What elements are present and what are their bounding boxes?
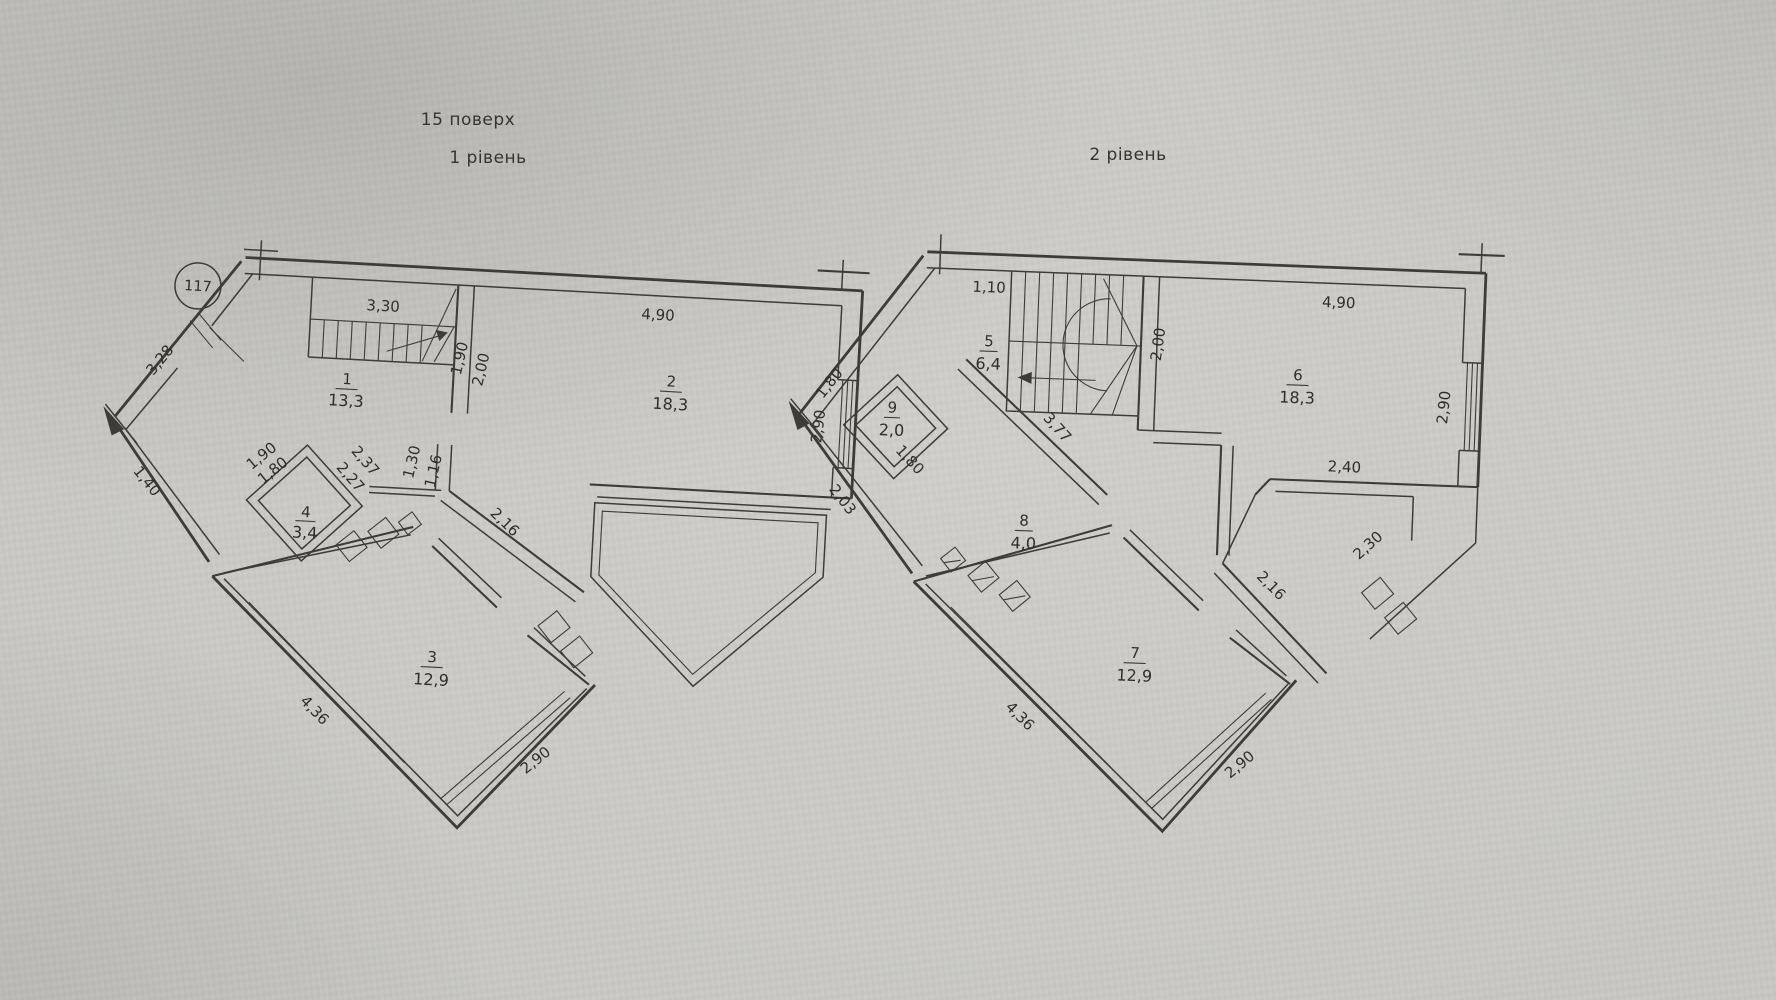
dim-terrace-a: 2,30 (1350, 528, 1387, 564)
level2-title: 2 рівень (1058, 145, 1198, 165)
room4-area: 3,4 (292, 522, 318, 542)
dim-entry: 1,80 (812, 365, 847, 402)
level1-apartment-badge: 117 (174, 262, 222, 310)
room3-number: 3 (427, 648, 438, 666)
level2-floor-plan: 5 6,4 6 18,3 7 12,9 8 4,0 9 2,0 1,10 4,9… (759, 216, 1543, 885)
level1-walls (95, 220, 870, 597)
dim-terrace-b: 2,16 (1253, 567, 1289, 603)
dim-side: 2,03 (825, 481, 860, 518)
dim-hall-b: 2,00 (468, 351, 493, 388)
dim-hall-a: 1,90 (447, 340, 472, 377)
dim-hall: 3,77 (1039, 409, 1075, 446)
room1-number: 1 (342, 370, 353, 388)
level1-stairs (308, 277, 458, 365)
level2-laundry-fixtures (939, 547, 1032, 612)
level1-title: 1 рівень (418, 148, 558, 168)
dim-diag: 2,16 (487, 504, 524, 540)
room8-area: 4,0 (1010, 533, 1036, 553)
room7-area: 12,9 (1116, 665, 1152, 685)
room9-area: 2,0 (878, 420, 904, 440)
level2-room7-walls (905, 518, 1302, 837)
dim-stub-b: 1,16 (421, 453, 446, 490)
level2-room-labels: 5 6,4 6 18,3 7 12,9 8 4,0 9 2,0 (869, 328, 1317, 691)
dim-top: 4,90 (641, 305, 675, 325)
level1-room-labels: 1 13,3 2 18,3 3 12,9 4 3,4 (284, 353, 690, 703)
dim-right-wall: 2,90 (1433, 390, 1455, 425)
dim-left: 1,40 (130, 462, 165, 499)
dim-stair-width: 3,30 (366, 296, 400, 316)
room8-number: 8 (1019, 512, 1029, 530)
level1-dimensions: 3,30 4,90 2,90 3,28 1,40 1,90 2,00 1,30 … (114, 278, 834, 793)
dim-bottom-right: 2,90 (1221, 747, 1258, 782)
dim-step: 2,40 (1327, 457, 1361, 476)
level2-interior-walls (946, 269, 1485, 689)
apartment-number: 117 (184, 278, 213, 295)
room6-area: 18,3 (1279, 387, 1315, 407)
room9-number: 9 (887, 398, 897, 416)
level1-floor-plan: 117 1 13,3 2 18,3 3 12,9 4 3,4 3,30 4,90… (65, 219, 876, 860)
dim-bottom-left: 4,36 (297, 692, 333, 729)
dim-bottom-left: 4,36 (1002, 698, 1038, 734)
level2-stairs (1006, 271, 1143, 416)
room2-number: 2 (666, 372, 677, 390)
dim-stub-a: 1,30 (399, 444, 424, 481)
room1-area: 13,3 (328, 390, 365, 411)
room5-number: 5 (984, 332, 994, 350)
dim-stair-side: 2,00 (1147, 326, 1170, 362)
dim-wc: 1,80 (892, 441, 928, 478)
room2-area: 18,3 (652, 394, 689, 415)
room4-number: 4 (301, 503, 312, 521)
dim-top-left: 1,10 (972, 278, 1006, 297)
room5-area: 6,4 (975, 354, 1001, 374)
floor-title: 15 поверх (398, 110, 538, 130)
level1-bathroom-fixtures (335, 508, 422, 565)
dim-top: 4,90 (1322, 293, 1356, 312)
room7-number: 7 (1130, 644, 1140, 662)
room6-number: 6 (1293, 366, 1303, 384)
room3-area: 12,9 (413, 669, 450, 690)
level2-dimensions: 1,10 4,90 2,00 2,90 2,40 2,30 2,16 3,77 … (797, 272, 1458, 790)
level1-room3-walls (199, 516, 603, 835)
dim-bottom-right: 2,90 (517, 743, 554, 778)
